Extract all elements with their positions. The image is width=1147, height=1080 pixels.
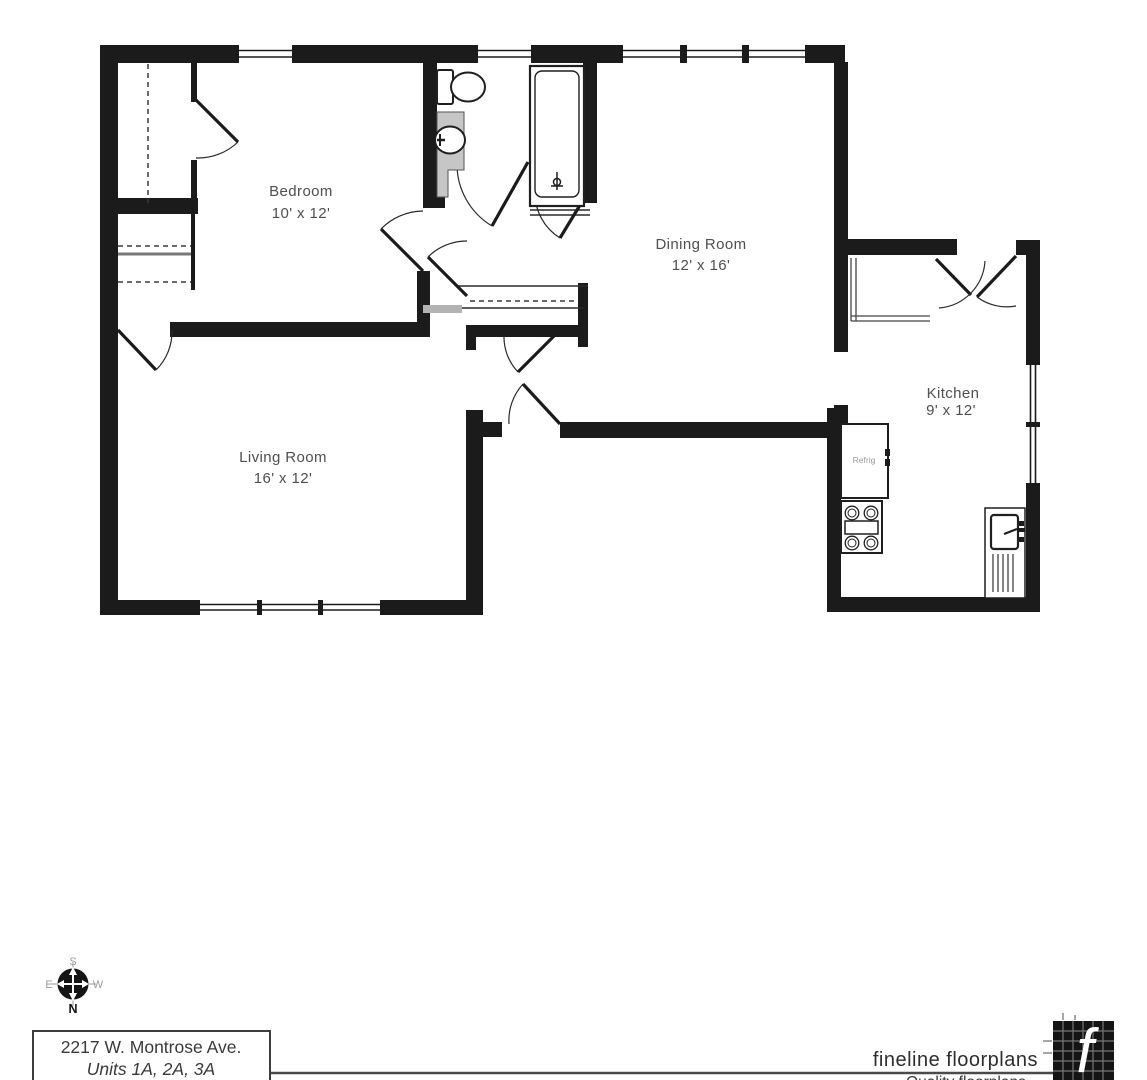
window-mullion bbox=[318, 600, 323, 615]
wall-living-right bbox=[466, 410, 483, 615]
bathtub-icon bbox=[530, 66, 584, 206]
wall-kitchen-left bbox=[827, 408, 841, 612]
wall-closet1-right-a bbox=[191, 62, 197, 102]
wall-left bbox=[100, 45, 118, 615]
wall-bath-south-stub bbox=[423, 196, 445, 208]
door-kitchen-rear-left bbox=[936, 259, 985, 308]
door-vestibule-lower bbox=[509, 384, 560, 424]
wall-midcloset-stub bbox=[466, 325, 476, 350]
wall-below-closet1 bbox=[100, 198, 198, 214]
compass-west-label: W bbox=[93, 979, 104, 991]
living-room-label: Living Room bbox=[239, 449, 327, 466]
door-bedroom-closet bbox=[196, 100, 238, 158]
window-bedroom-top bbox=[239, 45, 292, 63]
door-kitchen-rear-right bbox=[977, 256, 1016, 307]
vanity-sink-icon bbox=[435, 112, 465, 197]
floorplan-page: Refrig Bedroom 10' x 12' Dining Ro bbox=[0, 0, 1147, 1080]
compass-east-label: E bbox=[45, 979, 52, 991]
wall-dining-right-upper bbox=[834, 62, 848, 352]
window-dining-top bbox=[623, 45, 805, 63]
midcloset-open-edge bbox=[423, 305, 462, 313]
window-mullion bbox=[680, 45, 687, 63]
wall-kitchen-ne-cap bbox=[1016, 240, 1040, 255]
wall-midcloset-right bbox=[578, 283, 588, 347]
living-room-dims: 16' x 12' bbox=[254, 470, 313, 487]
bedroom-dims: 10' x 12' bbox=[272, 205, 331, 222]
refrigerator-icon: Refrig bbox=[841, 424, 890, 498]
address-line2: Units 1A, 2A, 3A bbox=[87, 1059, 215, 1079]
kitchen-fixtures: Refrig bbox=[841, 424, 1025, 598]
door-vestibule-upper bbox=[504, 335, 555, 372]
bedroom-label: Bedroom bbox=[269, 183, 333, 200]
window-mullion bbox=[1026, 422, 1040, 427]
wall-divider-right bbox=[560, 422, 841, 438]
door-bedroom bbox=[381, 211, 423, 271]
wall-midcloset-bottom bbox=[470, 325, 588, 337]
logo-wordmark: fineline floorplans bbox=[873, 1049, 1038, 1071]
dining-room-dims: 12' x 16' bbox=[672, 257, 731, 274]
wall-divider-left bbox=[466, 422, 502, 437]
dining-room-label: Dining Room bbox=[655, 236, 746, 253]
window-mullion bbox=[742, 45, 749, 63]
window-living-bottom bbox=[200, 600, 380, 615]
wall-bath-left bbox=[423, 62, 437, 208]
closet-details bbox=[118, 64, 930, 321]
wall-kitchen-top bbox=[834, 239, 957, 255]
window-mullion bbox=[257, 600, 262, 615]
kitchen-label: Kitchen bbox=[927, 385, 980, 402]
wall-kitchen-bottom bbox=[827, 597, 1040, 612]
refrigerator-label: Refrig bbox=[853, 455, 876, 465]
wall-closet2-right bbox=[191, 214, 195, 290]
footer: 2217 W. Montrose Ave. Units 1A, 2A, 3A f… bbox=[33, 1013, 1114, 1080]
compass-north-label: N bbox=[68, 1002, 77, 1016]
stove-icon bbox=[841, 501, 882, 553]
logo-tagline-clipped: Quality floorplans bbox=[906, 1074, 1026, 1080]
window-bath-top bbox=[478, 45, 531, 63]
bathroom-fixtures bbox=[435, 66, 584, 206]
compass-south-label: S bbox=[69, 956, 76, 968]
logo-mark: f bbox=[1043, 1013, 1114, 1080]
wall-bedroom-bottom bbox=[170, 322, 423, 337]
door-living-entry bbox=[118, 330, 172, 370]
kitchen-dims: 9' x 12' bbox=[926, 402, 976, 419]
wall-hall-vertical bbox=[417, 271, 430, 337]
door-hall-closet bbox=[428, 241, 467, 296]
toilet-icon bbox=[437, 70, 485, 104]
compass-rose: S E W N bbox=[45, 956, 103, 1016]
address-line1: 2217 W. Montrose Ave. bbox=[61, 1037, 242, 1057]
floorplan-svg: Refrig Bedroom 10' x 12' Dining Ro bbox=[0, 0, 1147, 1080]
door-bathroom bbox=[457, 162, 528, 226]
wall-dining-right-stub bbox=[834, 405, 848, 425]
kitchen-sink-icon bbox=[985, 508, 1025, 598]
